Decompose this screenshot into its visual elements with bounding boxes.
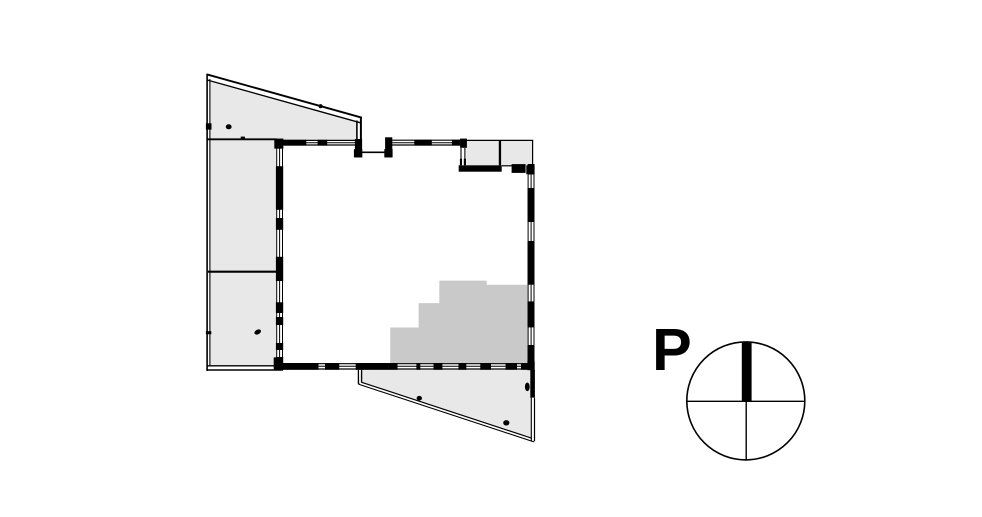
svg-text:P: P xyxy=(652,316,692,383)
